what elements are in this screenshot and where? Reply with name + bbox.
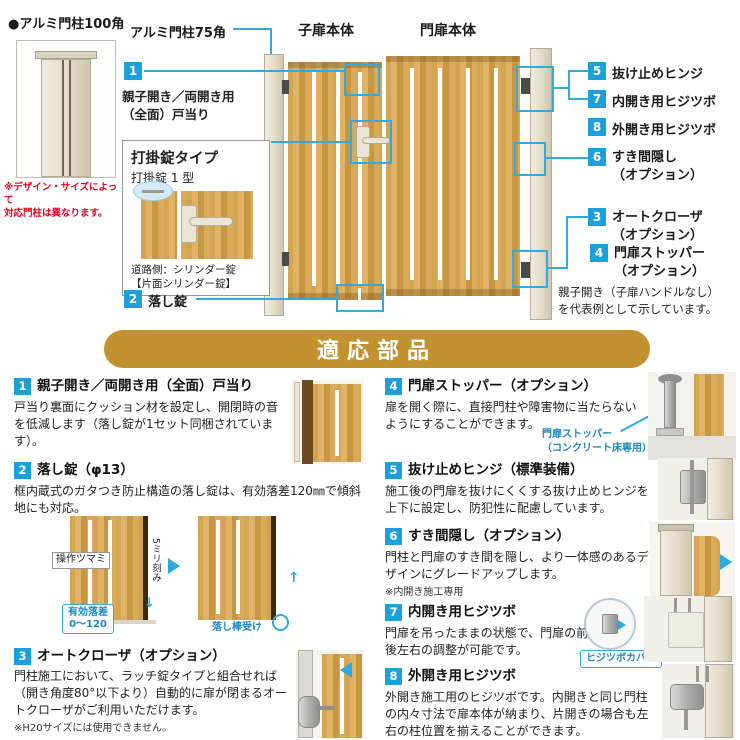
plank-slit <box>236 520 240 614</box>
post100-cap <box>35 51 97 59</box>
section-2-image: 操作ツマミ 5ミリ刻み ↓ 有効落差 0〜120 落し棒受け ↑ <box>40 516 340 642</box>
section-banner: 適応部品 <box>104 330 650 368</box>
pin <box>688 598 691 612</box>
callout-8-label: 外開き用ヒジツボ <box>612 119 716 138</box>
panel-edge <box>271 516 276 620</box>
section-1-badge: 1 <box>14 378 31 395</box>
stopper-label: 門扉ストッパー （コンクリート床専用） <box>542 428 652 456</box>
key-shaft <box>142 190 164 193</box>
door-edge <box>694 536 720 596</box>
cover-block <box>668 612 704 648</box>
representative-note: 親子開き（子扉ハンドルなし） を代表例として示しています。 <box>558 284 738 317</box>
plank-slit <box>438 68 442 280</box>
section-8-title: 外開き用ヒジツボ <box>408 668 516 685</box>
section-3-badge: 3 <box>14 648 31 665</box>
section-5-header: 5 抜け止めヒンジ（標準装備） <box>385 462 685 479</box>
callout-badge-1: 1 <box>124 62 142 80</box>
section-2-badge: 2 <box>14 462 31 479</box>
hinge-pin <box>690 460 694 514</box>
callout-line <box>144 70 344 72</box>
child-door-label: 子扉本体 <box>298 20 354 40</box>
door-rail <box>386 289 520 296</box>
post-section <box>705 664 733 738</box>
child-door <box>288 62 382 300</box>
callout-line <box>548 267 568 269</box>
callout-badge-2: 2 <box>124 290 142 308</box>
plank-slit <box>358 72 362 286</box>
stopper-post <box>664 380 676 428</box>
section-6-header: 6 すき間隠し（オプション） <box>385 528 685 545</box>
callout-badge-5: 5 <box>588 62 606 80</box>
doatari-strip <box>302 380 313 464</box>
key-icon <box>133 181 173 201</box>
section-4-image <box>648 372 736 460</box>
post75-label: アルミ門柱75角 <box>130 22 226 41</box>
callout-badge-6: 6 <box>588 148 606 166</box>
pin <box>674 598 677 612</box>
arrow-right-icon <box>168 558 180 574</box>
callout-line <box>546 157 588 159</box>
catalog-page: ●アルミ門柱100角 ※デザイン・サイズによって 対応門柱は異なります。 アルミ… <box>0 0 740 740</box>
arrow-left-icon <box>340 662 352 678</box>
plank-slit <box>410 68 414 280</box>
arrow-down-icon: ↓ <box>144 596 155 611</box>
post100-image <box>16 40 116 178</box>
plank-slit <box>216 520 220 614</box>
section-5-title: 抜け止めヒンジ（標準装備） <box>408 462 584 479</box>
callout-line <box>233 28 272 30</box>
callout-badge-7: 7 <box>588 90 606 108</box>
pitch-label: 5ミリ刻み <box>148 538 162 582</box>
hinge <box>282 252 289 266</box>
receiver-circle <box>272 614 289 631</box>
callout-badge-8: 8 <box>588 118 606 136</box>
section-5-badge: 5 <box>385 462 402 479</box>
lock-photo <box>141 191 253 259</box>
callout-line <box>270 28 272 54</box>
callout-line <box>271 141 350 143</box>
lock-box-caption: 道路側：シリンダー錠 【片面シリンダー錠】 <box>131 263 236 291</box>
pin <box>684 710 688 730</box>
section-8-body: 外開き施工用のヒジツボです。内開きと同じ門柱の内々寸法で扉本体が納まり、片開きの… <box>385 689 657 739</box>
callout-5-label: 抜け止めヒンジ <box>612 63 703 82</box>
knob-label: 操作ツマミ <box>52 552 110 569</box>
door-rail <box>386 56 520 62</box>
callout-1-label: 親子開き／両開き用 （全面）戸当り <box>122 88 262 123</box>
pin <box>696 666 699 682</box>
arrow-up-icon: ↑ <box>288 570 300 586</box>
callout-7-label: 内開き用ヒジツボ <box>612 91 716 110</box>
drop-range-label: 有効落差 0〜120 <box>62 604 114 634</box>
post100-seam <box>69 60 71 176</box>
section-5-image <box>658 458 735 520</box>
callout-line <box>566 216 588 218</box>
section-6-badge: 6 <box>385 528 402 545</box>
section-7-title: 内開き用ヒジツボ <box>408 604 516 621</box>
post100-note: ※デザイン・サイズによって 対応門柱は異なります。 <box>4 182 126 220</box>
callout-line <box>568 70 588 72</box>
callout-3-label: オートクローザ （オプション） <box>612 209 703 244</box>
stopper-base <box>656 428 684 436</box>
section-1-title: 親子開き／両開き用（全面）戸当り <box>37 378 253 395</box>
callout-line <box>196 298 336 300</box>
section-8-badge: 8 <box>385 668 402 685</box>
auto-closer-arm <box>316 706 334 710</box>
callout-badge-3: 3 <box>588 208 606 226</box>
post-section <box>660 530 692 596</box>
section-7-badge: 7 <box>385 604 402 621</box>
jamb-strip <box>294 382 300 462</box>
concrete-floor <box>648 436 736 460</box>
section-4-header: 4 門扉ストッパー（オプション） <box>385 378 685 395</box>
post100-body <box>41 59 91 177</box>
hinge <box>282 80 289 94</box>
section-7-body: 門扉を吊ったままの状態で、門扉の前後左右の調整が可能です。 <box>385 625 597 659</box>
callout-box-lock <box>350 120 392 164</box>
main-door <box>386 56 520 296</box>
section-6-note: ※内開き施工専用 <box>385 583 463 598</box>
section-3-body: 門柱施工において、ラッチ錠タイプと組合せれば（開き角度80°以下より）自動的に扉… <box>14 668 292 718</box>
callout-box-hinge-top <box>516 66 554 112</box>
drop-bolt-rod <box>358 288 361 308</box>
section-8-header: 8 外開き用ヒジツボ <box>385 668 685 685</box>
section-3-header: 3 オートクローザ（オプション） <box>14 648 314 665</box>
section-1-body: 戸当り裏面にクッション材を設定し、開閉時の音を低減します（落し錠が1セット同梱さ… <box>14 399 286 449</box>
lock-type-box: 打掛錠タイプ 打掛錠 1 型 道路側：シリンダー錠 【片面シリンダー錠】 <box>122 140 270 296</box>
callout-line <box>568 70 570 100</box>
hinge-knuckle <box>670 684 704 710</box>
receiver-label: 落し棒受け <box>212 618 262 633</box>
section-1-image <box>292 380 364 464</box>
callout-box-gap-cover <box>514 142 546 176</box>
section-7-header: 7 内開き用ヒジツボ <box>385 604 685 621</box>
plank-slit <box>335 390 339 456</box>
section-2-title: 落し錠（φ13） <box>37 462 134 479</box>
section-1-header: 1 親子開き／両開き用（全面）戸当り <box>14 378 294 395</box>
plank-slit <box>312 72 316 286</box>
main-door-label: 門扉本体 <box>420 20 476 40</box>
plank-slit <box>336 72 340 286</box>
post-section <box>707 458 733 520</box>
post100-label: ●アルミ門柱100角 <box>8 13 124 32</box>
section-6-image <box>650 522 735 600</box>
pin <box>706 666 709 682</box>
section-5-body: 施工後の門扉を抜けにくくする抜け止めヒンジを上下に設定し、防犯性に配慮しています… <box>385 483 653 517</box>
section-6-title: すき間隠し（オプション） <box>408 528 570 545</box>
arrow-right-icon <box>618 620 626 630</box>
section-2-body: 框内蔵式のガタつき防止構造の落し錠は、有効落差120㎜で傾斜地にも対応。 <box>14 483 366 517</box>
callout-6-label: すき間隠し （オプション） <box>612 149 703 184</box>
section-4-badge: 4 <box>385 378 402 395</box>
section-2-header: 2 落し錠（φ13） <box>14 462 314 479</box>
lock-box-title: 打掛錠タイプ <box>131 147 218 168</box>
auto-closer-body <box>298 696 320 728</box>
section-7-image <box>644 596 736 662</box>
section-7-inset-circle <box>584 598 636 650</box>
section-3-image <box>296 650 364 738</box>
callout-2-label: 落し錠 <box>148 291 187 310</box>
callout-box-hinge-bottom <box>512 250 548 288</box>
plank-slit <box>466 68 470 280</box>
post100-seam <box>62 60 64 176</box>
section-4-title: 門扉ストッパー（オプション） <box>408 378 597 395</box>
callout-line <box>566 216 568 269</box>
door-panel <box>313 384 361 462</box>
callout-line <box>568 98 588 100</box>
drop-bolt-panel-after <box>198 516 276 620</box>
hinge-block <box>602 614 618 634</box>
section-3-note: ※H20サイズには使用できません。 <box>14 719 172 734</box>
post-section <box>704 596 732 662</box>
section-8-image <box>662 664 735 738</box>
section-3-title: オートクローザ（オプション） <box>37 648 226 665</box>
callout-badge-4: 4 <box>590 244 608 262</box>
callout-box-doatari <box>344 64 380 96</box>
callout-4-label: 門扉ストッパー （オプション） <box>614 245 705 280</box>
arrow-right-icon <box>720 554 732 570</box>
plank-slit <box>494 68 498 280</box>
lock-lever <box>189 217 233 226</box>
section-6-body: 門柱と門扉のすき間を隠し、より一体感のあるデザインにグレードアップします。 <box>385 549 653 583</box>
